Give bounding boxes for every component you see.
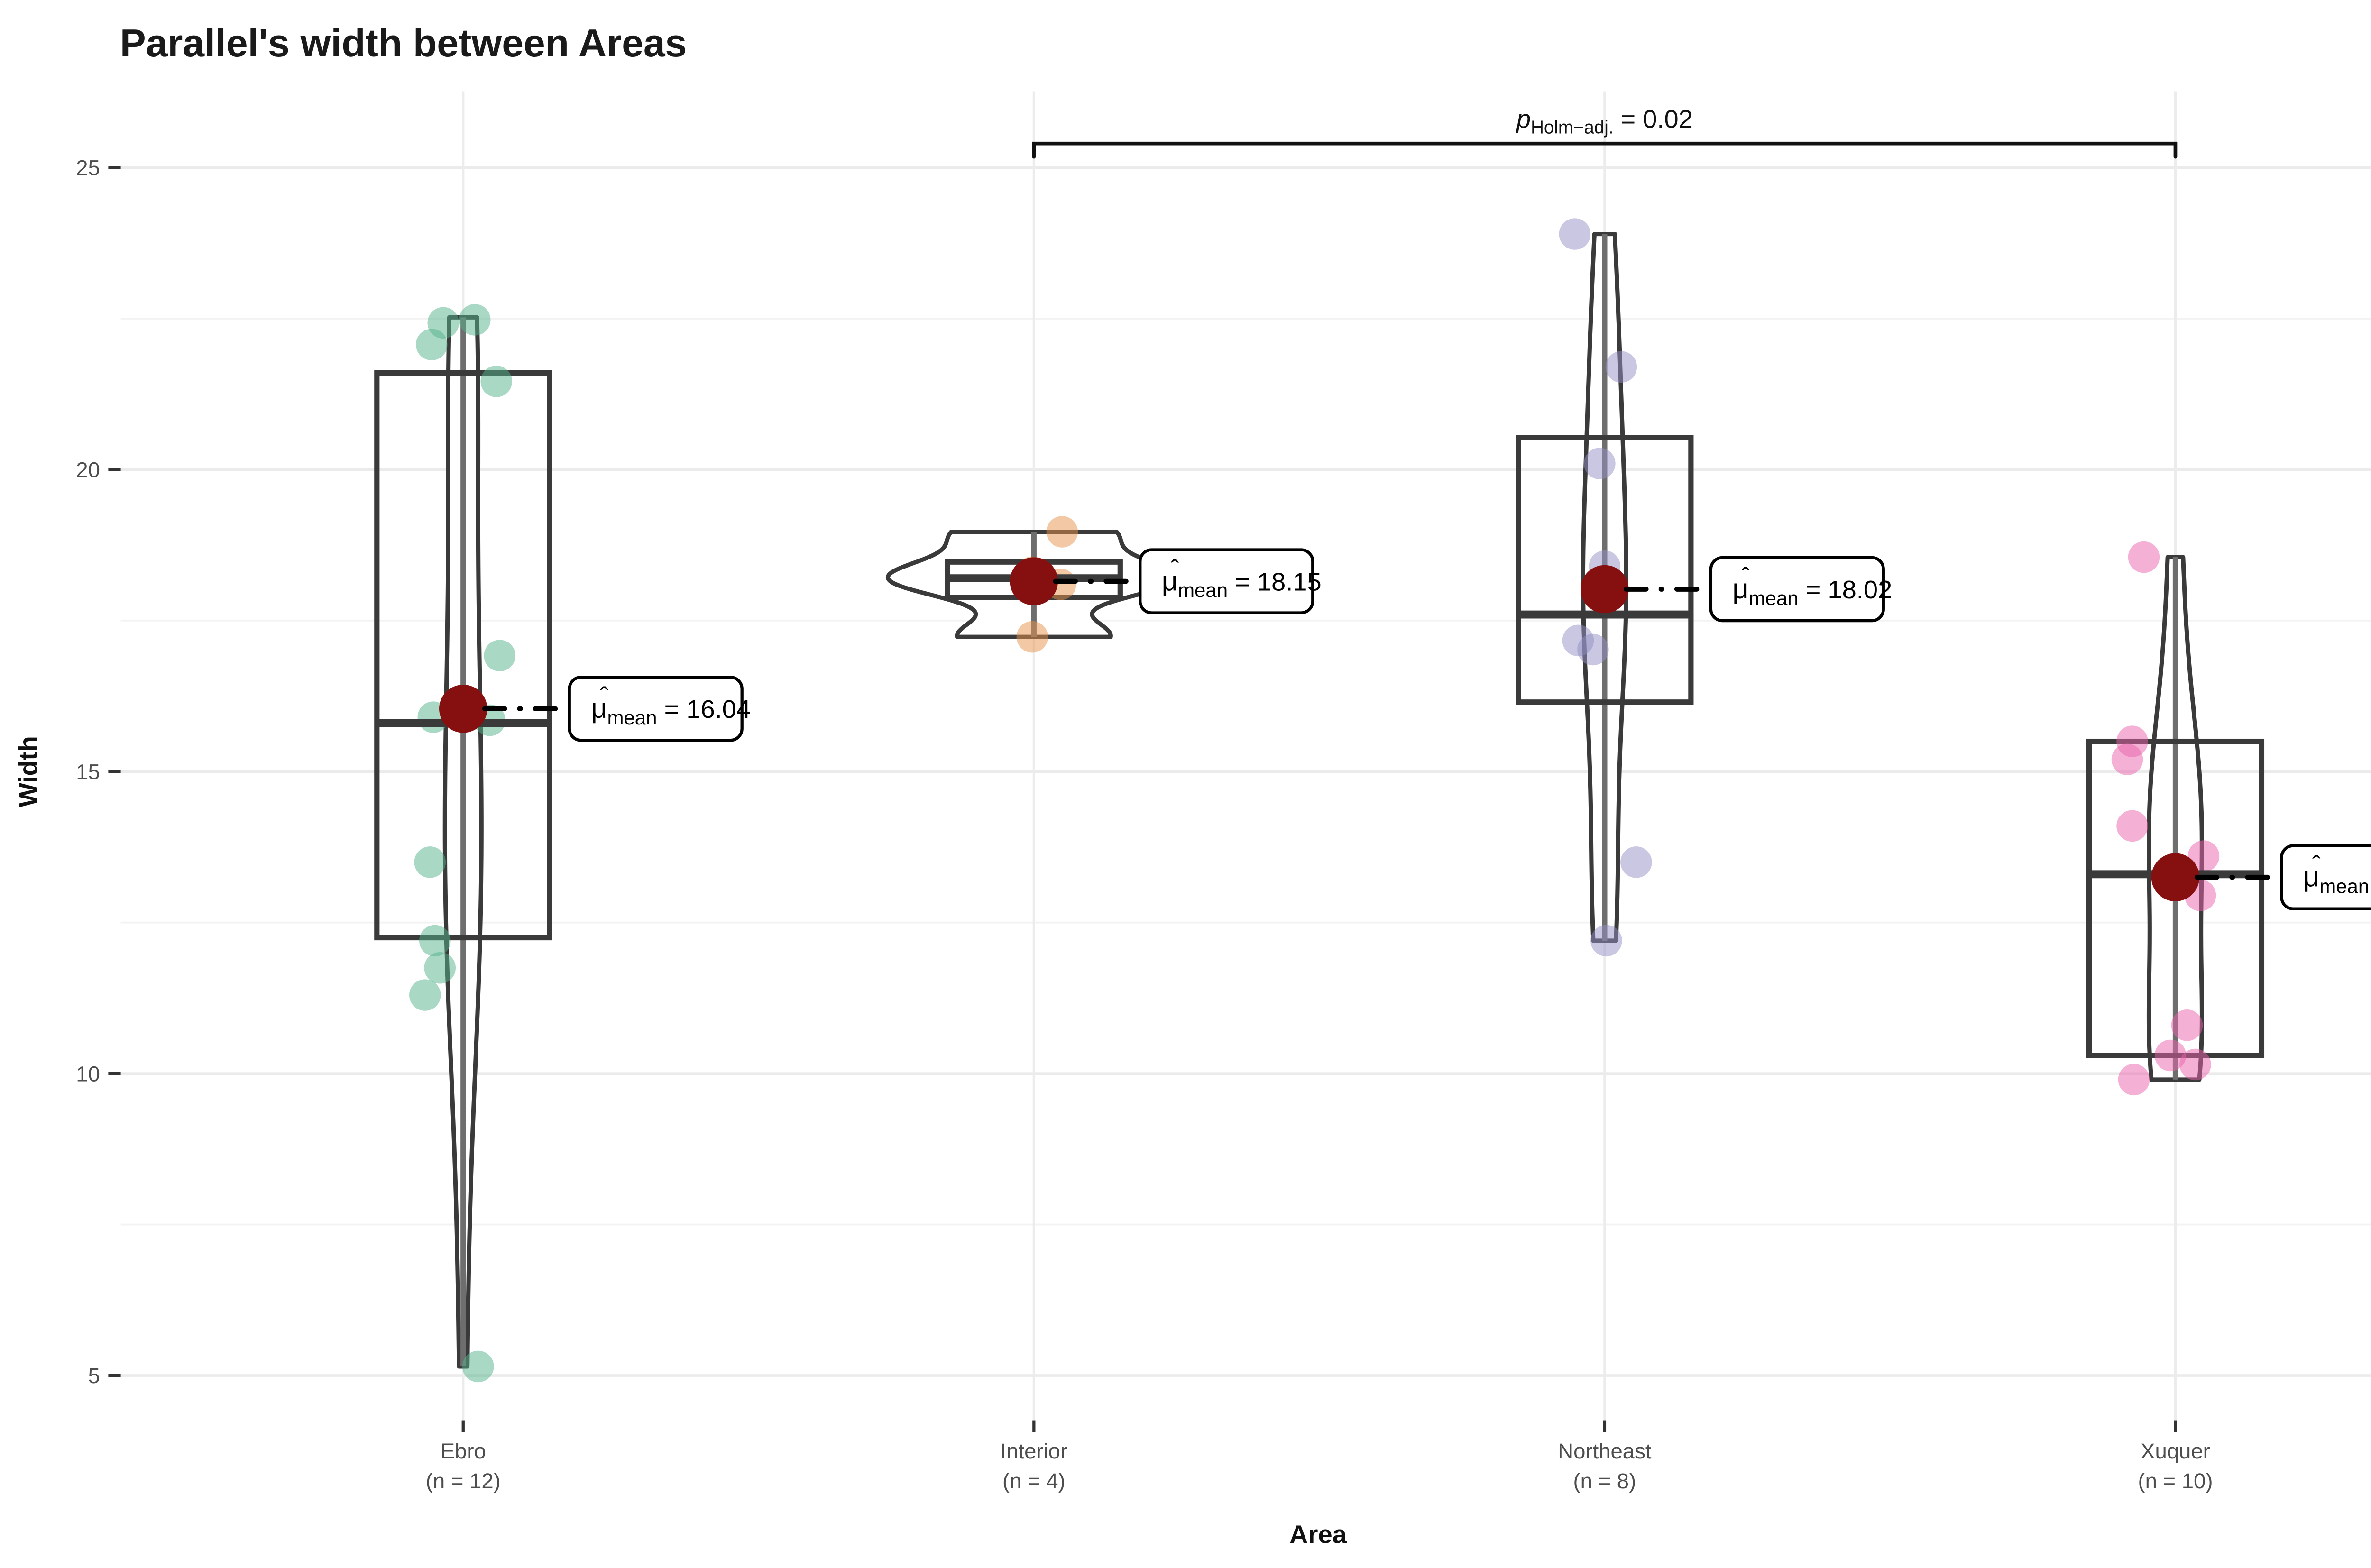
data-point (1017, 621, 1048, 652)
data-point (2179, 1049, 2211, 1080)
x-tick-label-name: Xuquer (2141, 1439, 2210, 1463)
mean-dot (439, 685, 487, 733)
mean-label: ˆμmean = 18.02 (1711, 558, 1892, 621)
y-axis-title: Width (14, 736, 43, 807)
x-tick-label-n: (n = 10) (2138, 1469, 2213, 1493)
data-point (1606, 351, 1637, 383)
y-tick-label: 20 (76, 458, 100, 482)
mean-label: ˆμmean = 16.04 (570, 677, 751, 740)
x-tick-label-name: Ebro (441, 1439, 486, 1463)
mean-dot (2151, 853, 2199, 901)
mean-dot (1010, 557, 1058, 605)
x-tick-label-name: Interior (1001, 1439, 1068, 1463)
data-point (419, 925, 450, 956)
data-point (484, 640, 515, 671)
x-tick-label-name: Northeast (1558, 1439, 1652, 1463)
data-point (481, 366, 512, 397)
plot-background (0, 0, 2371, 1568)
y-tick-label: 15 (76, 760, 100, 784)
data-point (2118, 1064, 2150, 1095)
statistical-violin-box-plot: 510152025Ebro(n = 12)Interior(n = 4)Nort… (0, 0, 2371, 1568)
data-point (1559, 218, 1590, 249)
x-tick-label-n: (n = 4) (1002, 1469, 1066, 1493)
data-point (459, 304, 490, 335)
data-point (409, 979, 441, 1010)
data-point (462, 1351, 494, 1382)
data-point (1047, 516, 1078, 547)
data-point (424, 952, 456, 983)
data-point (414, 846, 446, 878)
data-point (416, 329, 447, 360)
data-point (1620, 846, 1652, 878)
chart-title: Parallel's width between Areas (120, 22, 687, 65)
data-point (1590, 925, 1622, 956)
data-point (1577, 634, 1608, 665)
data-point (2128, 541, 2160, 573)
x-axis-title: Area (1289, 1521, 1347, 1549)
x-tick-label-n: (n = 12) (426, 1469, 501, 1493)
mean-dot (1581, 565, 1628, 613)
y-tick-label: 25 (76, 156, 100, 180)
y-tick-label: 5 (88, 1364, 100, 1388)
y-tick-label: 10 (76, 1062, 100, 1086)
mean-label: ˆμmean = 18.15 (1140, 550, 1321, 613)
data-point (2112, 744, 2143, 775)
data-point (1584, 448, 1615, 479)
data-point (2116, 810, 2148, 842)
mean-label: ˆμmean = 13.25 (2281, 846, 2371, 909)
data-point (2171, 1009, 2203, 1041)
x-tick-label-n: (n = 8) (1573, 1469, 1636, 1493)
